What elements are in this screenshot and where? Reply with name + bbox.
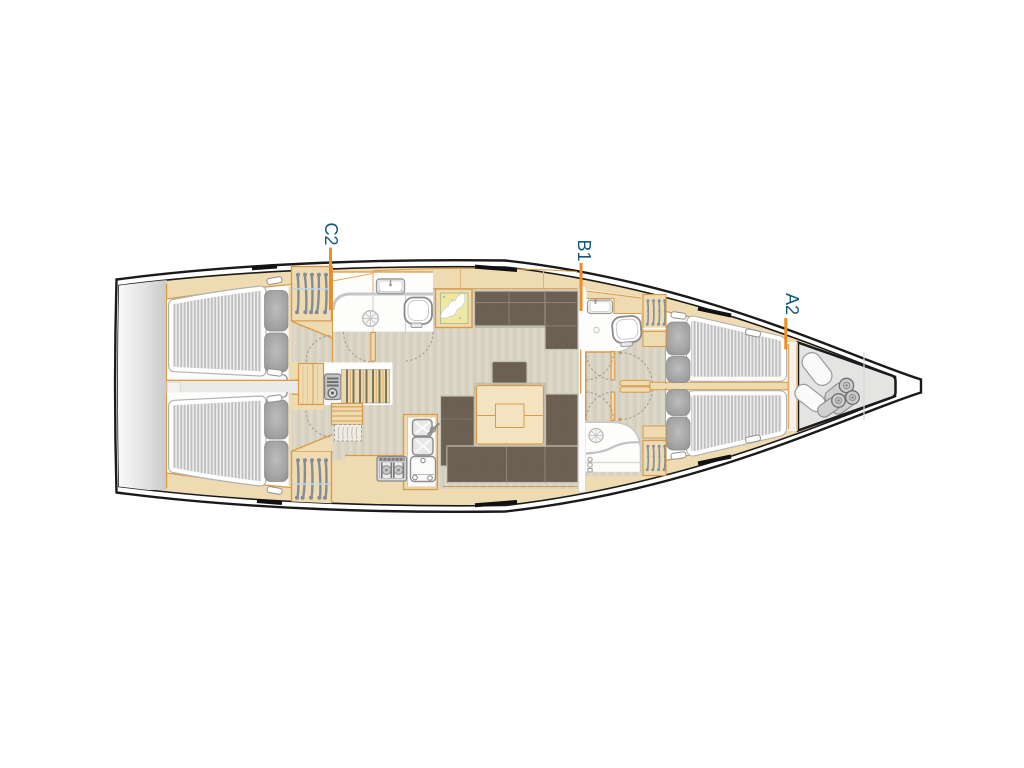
svg-text:A2: A2	[782, 293, 802, 315]
svg-text:C2: C2	[321, 222, 341, 245]
svg-text:B1: B1	[574, 239, 594, 261]
